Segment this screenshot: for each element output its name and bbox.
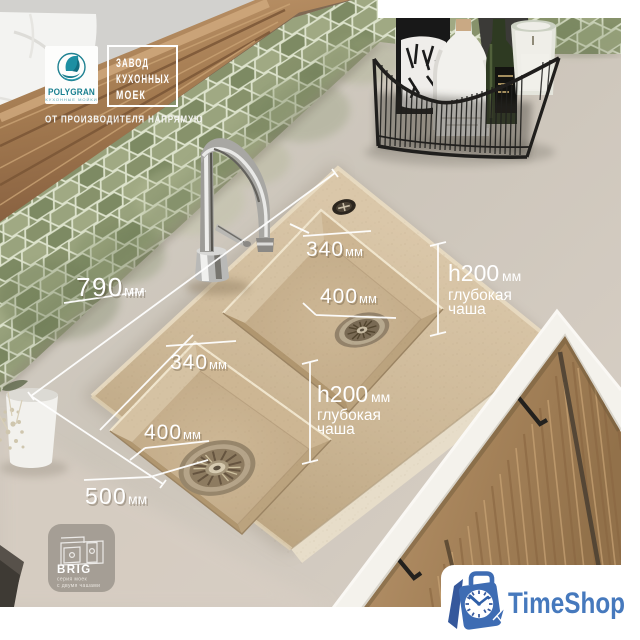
svg-text:МОЕК: МОЕК <box>116 90 146 102</box>
svg-text:340: 340 <box>306 238 344 261</box>
svg-text:мм: мм <box>128 491 147 507</box>
svg-text:мм: мм <box>345 244 363 259</box>
svg-text:мм: мм <box>371 389 390 405</box>
svg-text:чаша: чаша <box>448 301 486 318</box>
svg-text:мм: мм <box>124 283 145 300</box>
svg-text:мм: мм <box>209 357 227 372</box>
svg-text:мм: мм <box>502 268 521 284</box>
svg-text:TimeShop: TimeShop <box>508 587 625 620</box>
svg-text:серия моек: серия моек <box>57 577 88 583</box>
svg-text:КУХОННЫХ: КУХОННЫХ <box>116 74 170 86</box>
svg-text:340: 340 <box>170 351 208 374</box>
svg-text:КУХОННЫЕ МОЙКИ: КУХОННЫЕ МОЙКИ <box>45 97 97 102</box>
svg-text:400: 400 <box>144 421 182 444</box>
svg-text:500: 500 <box>85 483 127 509</box>
svg-text:мм: мм <box>359 291 377 306</box>
svg-text:чаша: чаша <box>317 421 355 438</box>
svg-text:мм: мм <box>183 427 201 442</box>
svg-text:с двумя чашами: с двумя чашами <box>57 583 100 589</box>
svg-text:ОТ ПРОИЗВОДИТЕЛЯ НАПРЯМУЮ: ОТ ПРОИЗВОДИТЕЛЯ НАПРЯМУЮ <box>45 114 203 126</box>
svg-text:400: 400 <box>320 285 358 308</box>
svg-text:h200: h200 <box>448 260 499 286</box>
svg-text:ЗАВОД: ЗАВОД <box>116 58 149 70</box>
svg-text:h200: h200 <box>317 381 368 407</box>
svg-text:790: 790 <box>76 272 124 302</box>
svg-text:BRIG: BRIG <box>57 564 92 576</box>
